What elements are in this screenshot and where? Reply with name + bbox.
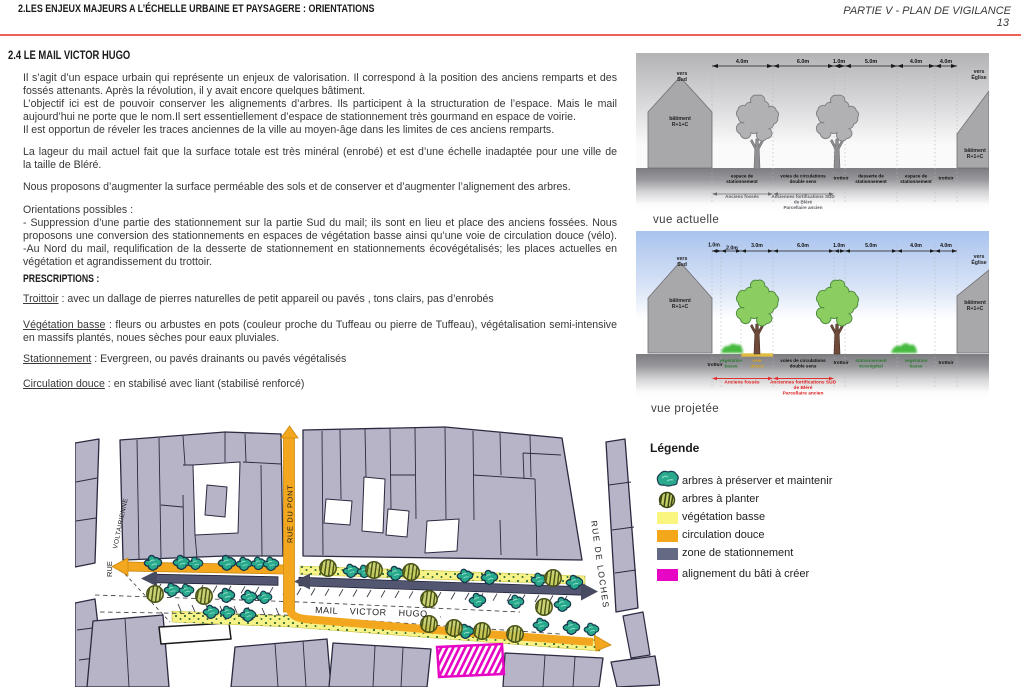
svg-text:desserte de: desserte de <box>858 174 884 179</box>
svg-text:4.0m: 4.0m <box>910 59 922 65</box>
svg-text:Anciennes fortifications SUD: Anciennes fortifications SUD <box>771 194 835 199</box>
svg-text:double sens: double sens <box>790 179 817 184</box>
svg-text:trottoir: trottoir <box>938 176 953 181</box>
svg-text:5.0m: 5.0m <box>865 59 877 65</box>
svg-text:Église: Église <box>971 258 986 266</box>
svg-text:stationnement: stationnement <box>900 179 932 184</box>
svg-text:voies de circulations: voies de circulations <box>780 174 826 179</box>
svg-text:6.0m: 6.0m <box>797 59 809 65</box>
svg-text:écovégétal: écovégétal <box>859 364 883 369</box>
svg-text:Parcellaire ancien: Parcellaire ancien <box>783 391 824 397</box>
svg-text:voies de circulations: voies de circulations <box>780 358 826 363</box>
svg-text:espace de: espace de <box>731 174 754 179</box>
svg-text:1.0m: 1.0m <box>708 243 720 249</box>
svg-text:4.0m: 4.0m <box>736 59 748 65</box>
svg-text:Anciens fossés: Anciens fossés <box>725 194 759 199</box>
svg-text:1.0m: 1.0m <box>833 243 845 249</box>
svg-text:stationnement: stationnement <box>726 179 758 184</box>
svg-text:de Bléré: de Bléré <box>794 385 813 391</box>
svg-text:stationnement: stationnement <box>855 358 887 363</box>
svg-text:double sens: double sens <box>790 364 817 369</box>
svg-text:5.0m: 5.0m <box>865 243 877 249</box>
svg-text:4.0m: 4.0m <box>910 243 922 249</box>
svg-text:RUE DU PONT: RUE DU PONT <box>286 485 295 543</box>
svg-text:végétation: végétation <box>905 358 928 363</box>
svg-text:végétation: végétation <box>720 358 743 363</box>
svg-text:R+1+C: R+1+C <box>672 122 689 128</box>
svg-text:4.0m: 4.0m <box>940 59 952 65</box>
svg-text:3.0m: 3.0m <box>751 243 763 249</box>
svg-text:2.0m: 2.0m <box>726 246 738 252</box>
svg-text:R+1+C: R+1+C <box>672 304 689 310</box>
svg-text:MAIL VICTOR HUGO .: MAIL VICTOR HUGO . <box>315 605 443 619</box>
svg-text:stationnement: stationnement <box>855 179 887 184</box>
svg-text:RUE DE LOCHES: RUE DE LOCHES <box>589 520 611 609</box>
svg-text:6.0m: 6.0m <box>797 243 809 249</box>
svg-text:trottoir: trottoir <box>938 360 953 365</box>
svg-text:Parcellaire ancien: Parcellaire ancien <box>783 205 822 210</box>
svg-text:R+1+C: R+1+C <box>967 306 984 312</box>
svg-text:douce: douce <box>750 364 764 369</box>
svg-text:RUE: RUE <box>105 561 114 577</box>
svg-text:Anciennes fortifications SUD: Anciennes fortifications SUD <box>770 380 837 386</box>
svg-text:trottoir: trottoir <box>833 360 848 365</box>
svg-text:trottoir: trottoir <box>833 176 848 181</box>
svg-text:Sud: Sud <box>677 77 687 83</box>
svg-text:basse: basse <box>909 364 922 369</box>
svg-text:R+1+C: R+1+C <box>967 154 984 160</box>
svg-text:Anciens fossés: Anciens fossés <box>724 380 760 386</box>
svg-text:basse: basse <box>724 364 737 369</box>
svg-text:Sud: Sud <box>677 262 687 268</box>
svg-text:voie: voie <box>752 358 762 363</box>
svg-text:espace de: espace de <box>905 174 928 179</box>
svg-text:de Bléré: de Bléré <box>794 200 813 205</box>
svg-text:Église: Église <box>971 73 986 81</box>
svg-text:4.0m: 4.0m <box>940 243 952 249</box>
svg-text:1.0m: 1.0m <box>833 59 845 65</box>
